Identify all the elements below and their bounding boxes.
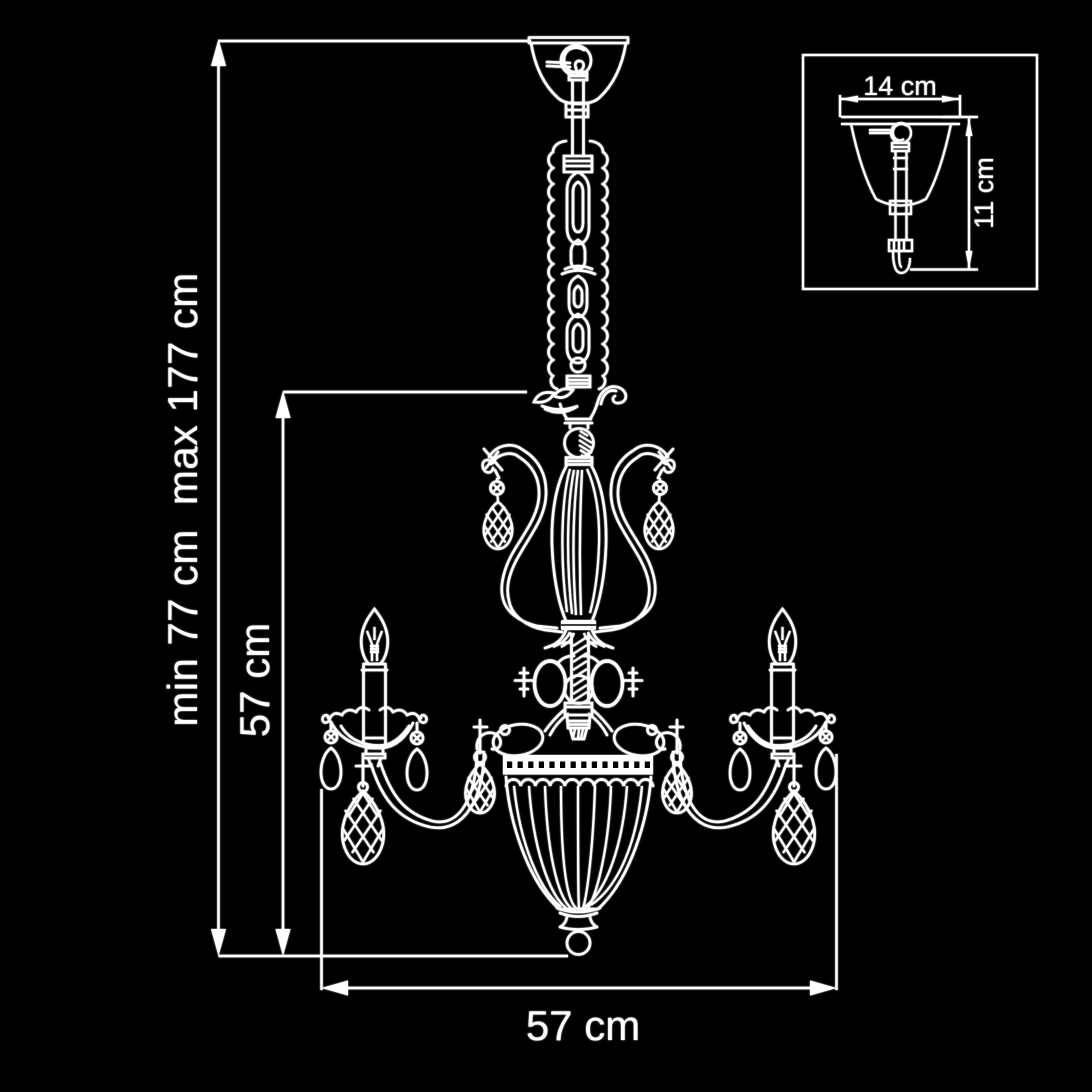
svg-text:11 cm: 11 cm bbox=[969, 157, 999, 229]
svg-text:57 cm: 57 cm bbox=[526, 1002, 640, 1049]
svg-text:14 cm: 14 cm bbox=[863, 71, 937, 101]
svg-text:57 cm: 57 cm bbox=[231, 623, 278, 737]
svg-text:min 77 cm max 177 cm: min 77 cm max 177 cm bbox=[159, 272, 206, 726]
